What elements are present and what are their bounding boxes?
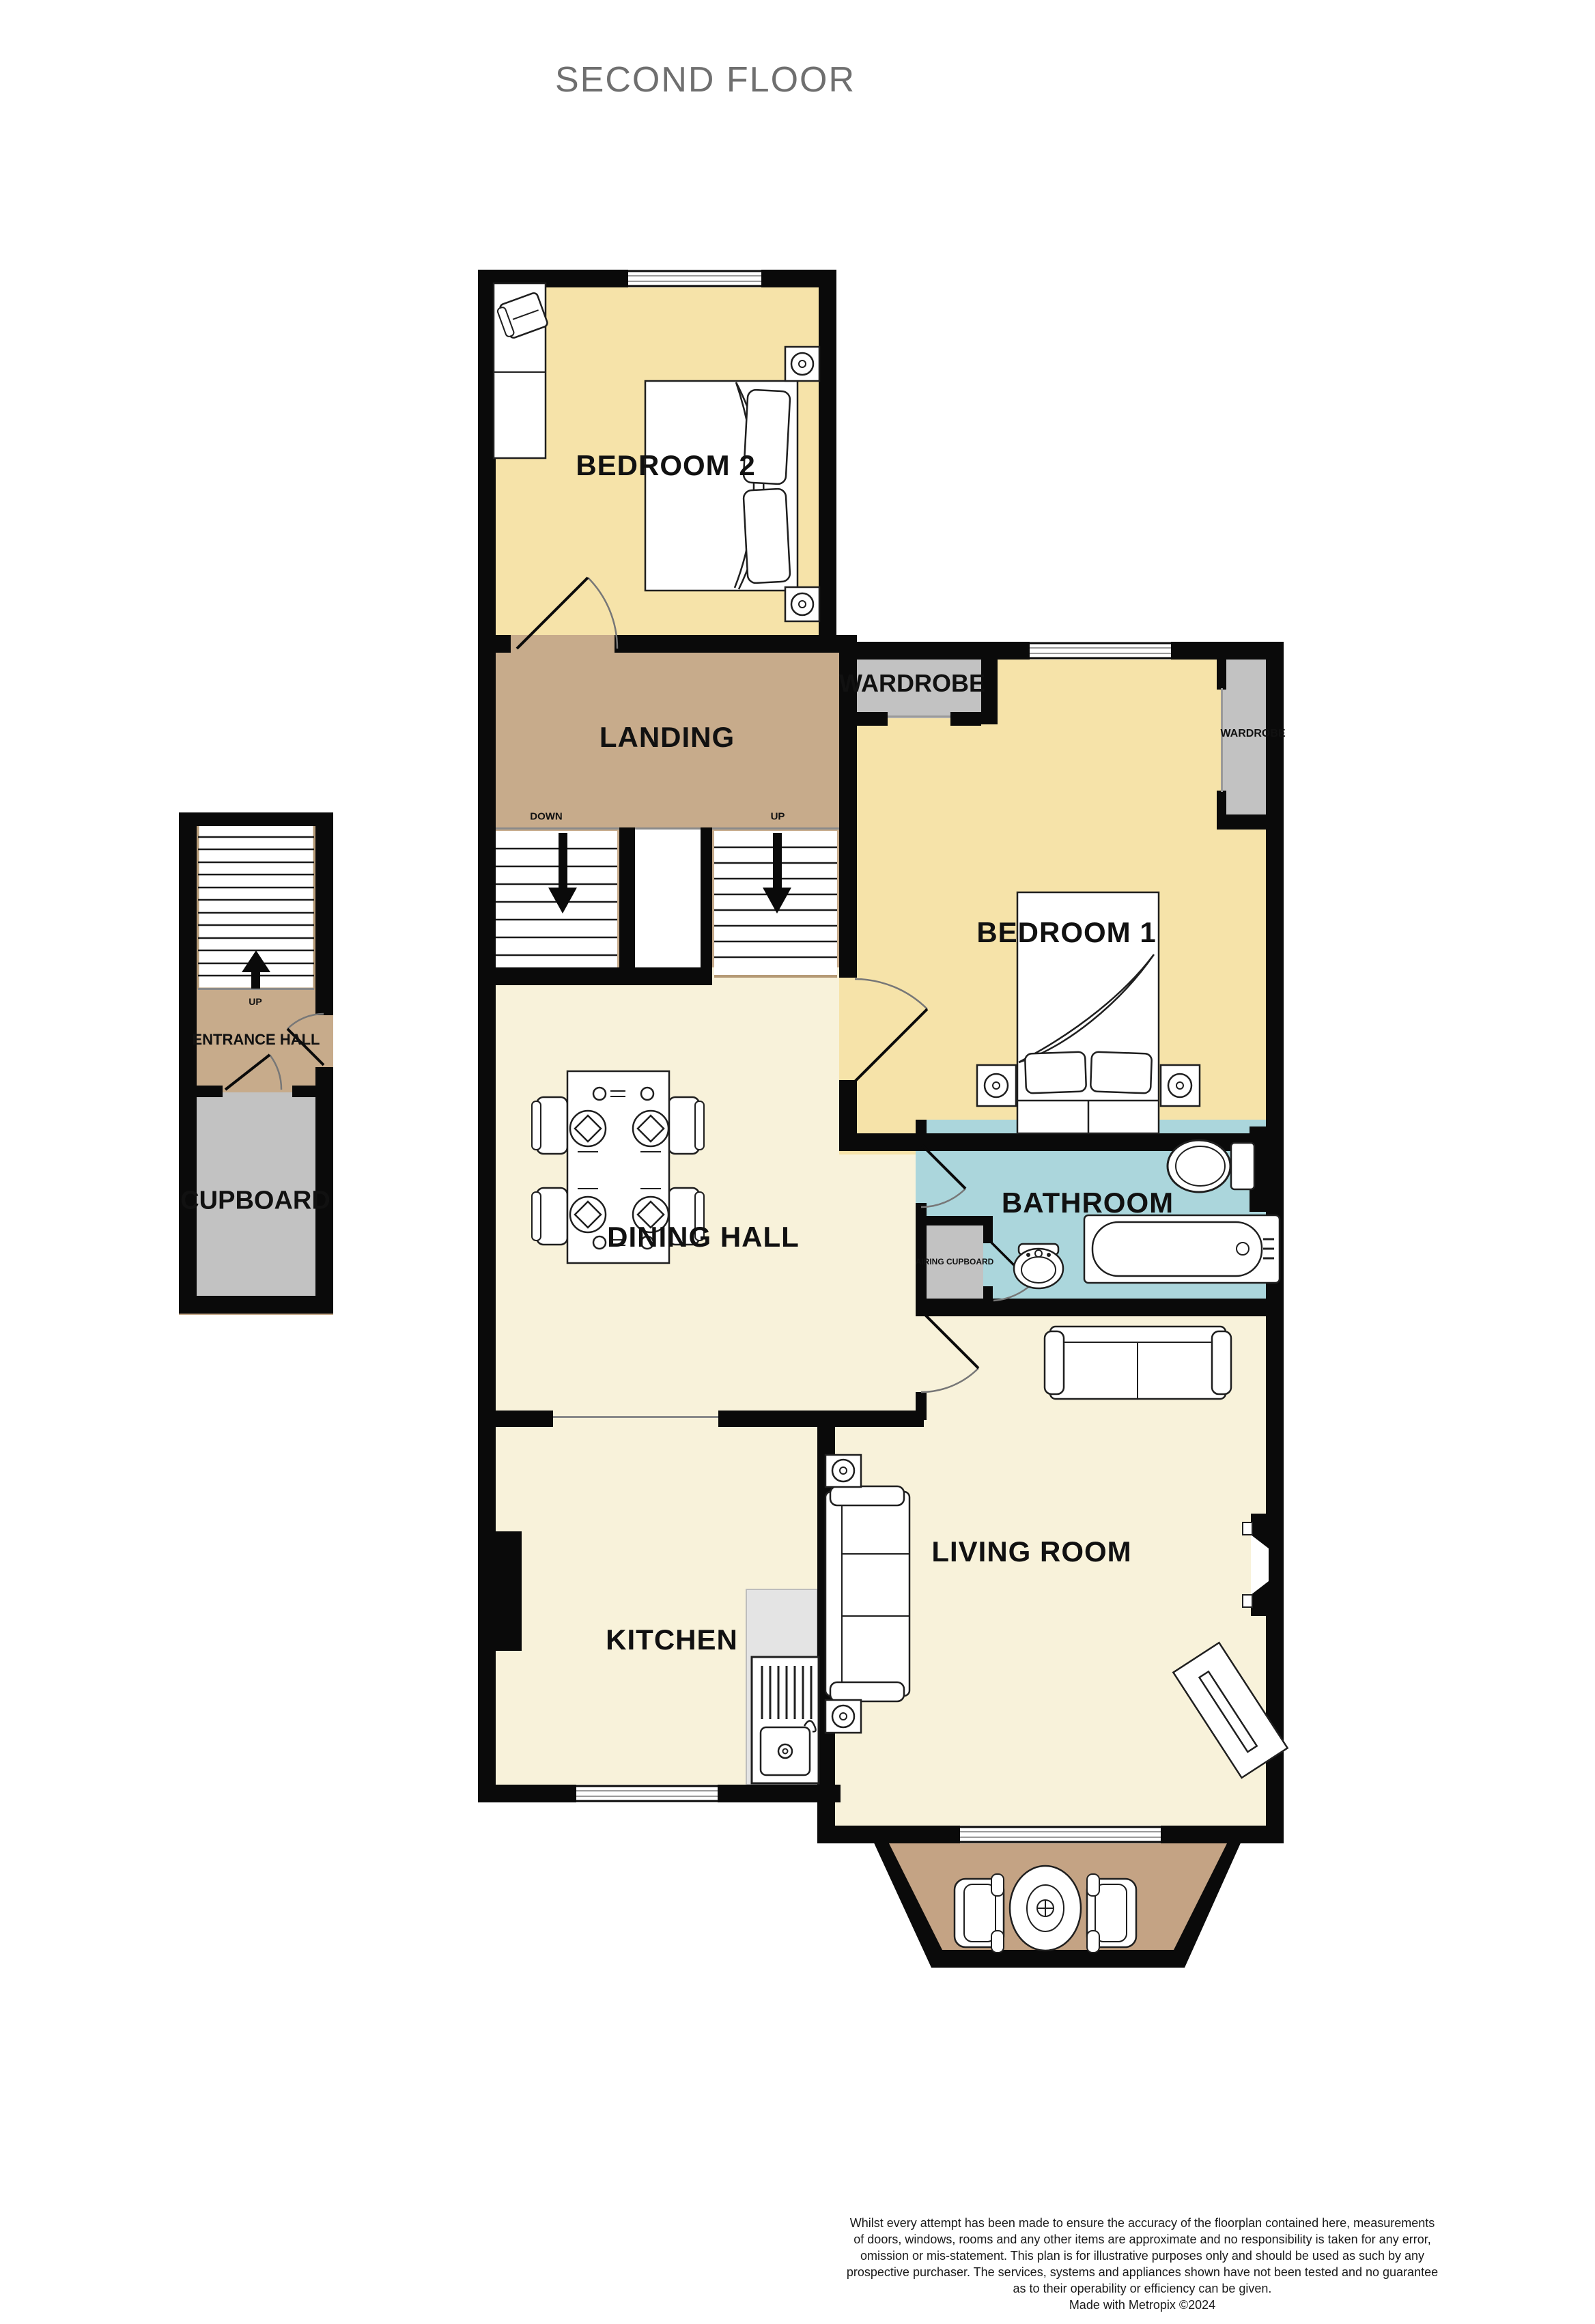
wardrobe-left-label: WARDROBE (839, 669, 985, 698)
bathtub-icon (1084, 1215, 1280, 1283)
airing-cupboard-label: AIRING CUPBOARD (916, 1257, 994, 1266)
disclaimer-line: omission or mis-statement. This plan is … (733, 2248, 1552, 2264)
bed2-pillow-bottom (743, 488, 790, 583)
stairwell-void (635, 827, 701, 985)
dining-chair-icon (532, 1188, 567, 1245)
stairs-down-label: DOWN (530, 811, 563, 823)
kitchen-window (576, 1785, 718, 1802)
dining-hall-label: DINING HALL (607, 1221, 800, 1253)
disclaimer-line: Whilst every attempt has been made to en… (733, 2215, 1552, 2231)
landing-edge-line (496, 827, 839, 830)
kitchen-sink-icon (752, 1657, 819, 1783)
disclaimer-line: as to their operability or efficiency ca… (733, 2280, 1552, 2297)
bedside-table-icon (785, 347, 819, 381)
stairs-entrance (198, 823, 314, 990)
sink-icon (1014, 1244, 1063, 1288)
floorplan-page: SECOND FLOOR BEDROOM 2 LANDING DOWN UP W… (0, 0, 1595, 2324)
stairs-up-label: UP (771, 811, 785, 823)
disclaimer-line: prospective purchaser. The services, sys… (733, 2264, 1552, 2280)
lamp-table-icon (825, 1700, 861, 1733)
kitchen-label: KITCHEN (606, 1624, 738, 1656)
wardrobe-left-front-line (888, 715, 950, 718)
sofa-left-icon (825, 1486, 909, 1701)
stairs-up-bottom-line (714, 975, 837, 978)
wardrobe-right-label: WARDROBE (1220, 728, 1285, 740)
balcony-chair-left-icon (955, 1874, 1004, 1953)
lamp-table-icon (825, 1455, 861, 1487)
wardrobe-right-front-line (1221, 688, 1223, 792)
bedside-table-icon (785, 587, 819, 621)
bedroom2-window (628, 270, 761, 287)
bed1-pillow-left (1025, 1051, 1086, 1093)
bedroom2-label: BEDROOM 2 (576, 449, 755, 482)
credit-line: Made with Metropix ©2024 (733, 2297, 1552, 2313)
toilet-icon (1168, 1140, 1254, 1192)
cupboard-label: CUPBOARD (180, 1187, 330, 1216)
bed1-pillow-right (1090, 1051, 1152, 1093)
bedroom1-window (1030, 642, 1171, 660)
dining-chair-icon (668, 1097, 704, 1154)
bedside-table-icon (1161, 1065, 1200, 1106)
stairs-main (496, 827, 839, 985)
living-room-label: LIVING ROOM (931, 1535, 1131, 1568)
bedroom1-label: BEDROOM 1 (976, 916, 1156, 949)
balcony-chair-right-icon (1087, 1874, 1136, 1953)
balcony (873, 1840, 1242, 1968)
landing-label: LANDING (599, 721, 735, 754)
disclaimer-line: of doors, windows, rooms and any other i… (733, 2231, 1552, 2248)
sofa-top-icon (1045, 1327, 1231, 1399)
entrance-up-label: UP (249, 996, 262, 1007)
bedside-table-icon (977, 1065, 1016, 1106)
disclaimer: Whilst every attempt has been made to en… (733, 2215, 1552, 2313)
entrance-hall-label: ENTRANCE HALL (193, 1031, 320, 1049)
livingroom-window (960, 1826, 1161, 1843)
kitchen-fixtures (752, 1657, 819, 1783)
floorplan-canvas (0, 0, 1595, 2324)
floor-title: SECOND FLOOR (555, 59, 856, 100)
dining-chair-icon (532, 1097, 567, 1154)
bathroom-label: BATHROOM (1002, 1187, 1174, 1219)
kitchen-dining-divider-line (553, 1416, 718, 1418)
